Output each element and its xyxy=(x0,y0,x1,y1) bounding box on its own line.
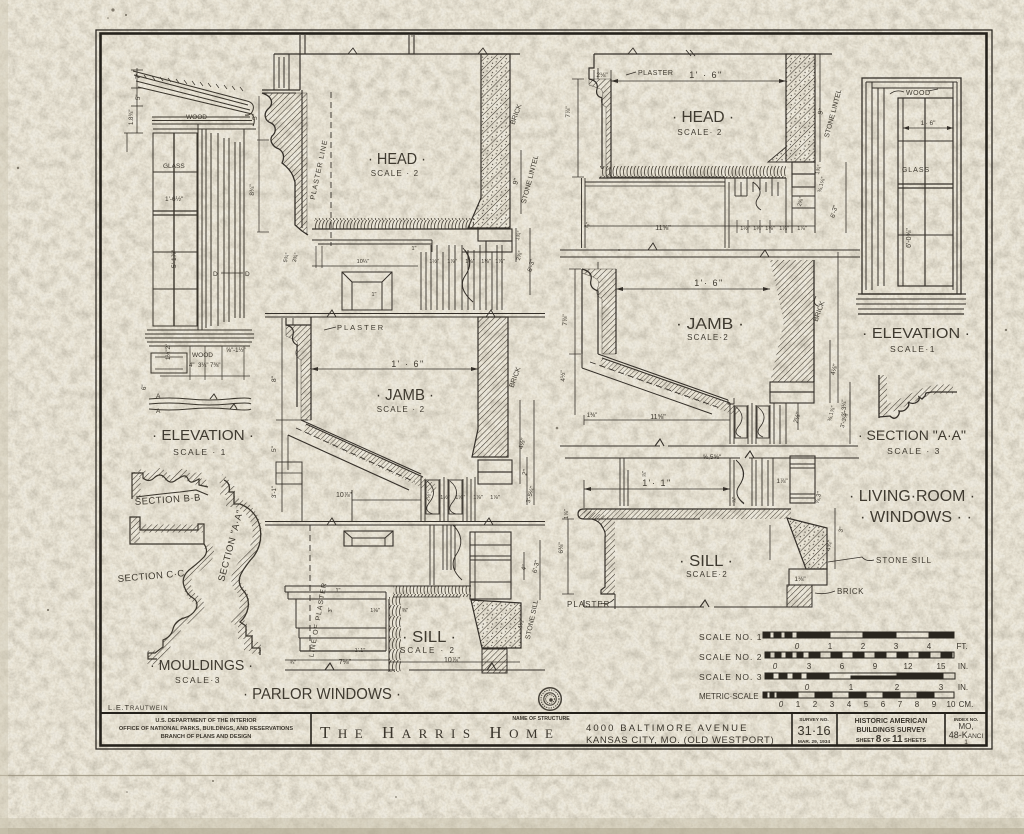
svg-text:SCALE·1: SCALE·1 xyxy=(890,344,936,354)
svg-text:2: 2 xyxy=(895,683,900,692)
svg-text:6": 6" xyxy=(142,385,148,390)
svg-text:1": 1" xyxy=(371,292,376,298)
svg-text:6⅜": 6⅜" xyxy=(558,542,565,554)
svg-text:CM.: CM. xyxy=(959,700,974,709)
svg-text:SCALE·3: SCALE·3 xyxy=(175,675,221,685)
svg-text:12: 12 xyxy=(904,662,913,671)
svg-text:3'-1": 3'-1" xyxy=(272,486,278,498)
svg-text:4": 4" xyxy=(189,363,194,369)
svg-text:1⅞": 1⅞" xyxy=(779,226,789,232)
svg-text:7⅜": 7⅜" xyxy=(210,363,220,369)
svg-text:⅜": ⅜" xyxy=(402,608,409,614)
svg-text:3'-3¼": 3'-3¼" xyxy=(842,400,848,417)
svg-text:1' · 6": 1' · 6" xyxy=(689,70,722,80)
svg-text:1: 1 xyxy=(796,700,801,709)
svg-text:10⅞": 10⅞" xyxy=(444,657,461,664)
svg-text:SCALE· 2: SCALE· 2 xyxy=(677,128,722,137)
svg-text:THE HARRIS HOME: THE HARRIS HOME xyxy=(320,723,560,742)
svg-text:7": 7" xyxy=(136,74,142,79)
svg-text:7⅞": 7⅞" xyxy=(562,314,569,326)
svg-text:1⅜": 1⅜" xyxy=(587,413,597,419)
svg-text:1⅞": 1⅞" xyxy=(447,259,457,265)
svg-text:1.8¾": 1.8¾" xyxy=(129,110,135,125)
svg-text:10¼": 10¼" xyxy=(357,259,370,265)
svg-text:SCALE · 3: SCALE · 3 xyxy=(887,446,941,456)
svg-text:· ELEVATION ·: · ELEVATION · xyxy=(152,428,254,444)
svg-text:NAME OF STRUCTURE: NAME OF STRUCTURE xyxy=(512,716,570,722)
svg-text:A: A xyxy=(156,393,161,400)
svg-text:SCALE·2: SCALE·2 xyxy=(687,333,729,342)
svg-text:1⅝": 1⅝" xyxy=(455,495,465,501)
svg-text:1'· 6": 1'· 6" xyxy=(921,120,936,127)
svg-text:1: 1 xyxy=(849,683,854,692)
svg-text:PLASTER: PLASTER xyxy=(567,600,610,609)
svg-text:¾": ¾" xyxy=(290,660,297,666)
svg-text:0: 0 xyxy=(795,642,800,651)
svg-text:1½"2": 1½"2" xyxy=(165,344,172,360)
svg-text:· HEAD ·: · HEAD · xyxy=(672,109,734,126)
svg-text:METRIC·SCALE: METRIC·SCALE xyxy=(699,692,759,701)
svg-text:SCALE NO. 1: SCALE NO. 1 xyxy=(699,632,762,642)
svg-text:3: 3 xyxy=(830,700,835,709)
svg-text:3": 3" xyxy=(328,607,334,612)
svg-text:5'-1⅞": 5'-1⅞" xyxy=(171,249,178,268)
svg-text:WOOD: WOOD xyxy=(906,90,931,97)
svg-text:SCALE NO. 3: SCALE NO. 3 xyxy=(699,672,762,682)
svg-text:⅞": ⅞" xyxy=(642,471,648,478)
svg-text:1'· 6": 1'· 6" xyxy=(694,278,723,288)
svg-text:· WINDOWS · ·: · WINDOWS · · xyxy=(860,509,972,526)
svg-text:1¼": 1¼" xyxy=(753,226,763,232)
svg-text:2: 2 xyxy=(813,700,818,709)
svg-text:11⅝": 11⅝" xyxy=(655,225,671,232)
svg-text:HISTORIC AMERICAN: HISTORIC AMERICAN xyxy=(855,718,928,725)
svg-text:⅞": ⅞" xyxy=(732,497,738,504)
svg-text:2⅛": 2⅛" xyxy=(596,72,608,79)
svg-text:1'-6½": 1'-6½" xyxy=(165,195,184,203)
svg-text:5": 5" xyxy=(271,445,278,452)
svg-text:1'· 1": 1'· 1" xyxy=(642,478,671,488)
svg-text:IN.: IN. xyxy=(958,662,968,671)
svg-text:· MOULDINGS ·: · MOULDINGS · xyxy=(150,657,253,674)
svg-text:· LIVING·ROOM ·: · LIVING·ROOM · xyxy=(849,488,975,505)
svg-text:3: 3 xyxy=(939,683,944,692)
svg-text:4000 BALTIMORE AVENUE: 4000 BALTIMORE AVENUE xyxy=(586,723,749,734)
svg-text:3¼": 3¼" xyxy=(198,363,208,369)
svg-text:IN.: IN. xyxy=(958,683,968,692)
svg-text:1½": 1½" xyxy=(740,225,750,232)
svg-text:D: D xyxy=(245,271,250,278)
svg-text:BUILDINGS SURVEY: BUILDINGS SURVEY xyxy=(856,727,925,734)
svg-text:1⅞": 1⅞" xyxy=(797,226,807,232)
svg-text:· SILL ·: · SILL · xyxy=(679,553,733,570)
svg-text:⅝"-1½": ⅝"-1½" xyxy=(226,347,246,354)
svg-text:1½": 1½" xyxy=(440,494,450,501)
svg-text:7⅞": 7⅞" xyxy=(565,106,572,118)
svg-text:D: D xyxy=(213,271,218,278)
svg-text:1'.1": 1'.1" xyxy=(355,648,366,654)
svg-text:0: 0 xyxy=(779,700,784,709)
svg-text:8": 8" xyxy=(271,375,278,382)
svg-text:1' · 6": 1' · 6" xyxy=(391,359,424,369)
svg-text:31·16: 31·16 xyxy=(797,723,830,738)
svg-text:OFFICE OF NATIONAL PARKS, BUIL: OFFICE OF NATIONAL PARKS, BUILDINGS, AND… xyxy=(119,726,293,732)
svg-text:6: 6 xyxy=(840,662,845,671)
svg-text:4: 4 xyxy=(927,642,932,651)
svg-text:PLASTER: PLASTER xyxy=(337,323,385,332)
svg-text:SCALE · 2: SCALE · 2 xyxy=(377,405,426,414)
svg-text:PLASTER: PLASTER xyxy=(638,70,673,77)
svg-text:1⅛": 1⅛" xyxy=(465,259,475,265)
svg-text:WOOD: WOOD xyxy=(186,114,207,121)
svg-text:· PARLOR WINDOWS ·: · PARLOR WINDOWS · xyxy=(243,686,401,703)
svg-text:A: A xyxy=(156,408,161,415)
svg-text:· SECTION "A·A": · SECTION "A·A" xyxy=(858,428,966,443)
svg-text:1½": 1½" xyxy=(429,258,439,265)
svg-text:3: 3 xyxy=(894,642,899,651)
svg-text:1: 1 xyxy=(828,642,833,651)
svg-text:8: 8 xyxy=(915,700,920,709)
svg-text:4½": 4½" xyxy=(559,370,567,382)
svg-text:SCALE · 2: SCALE · 2 xyxy=(371,169,420,178)
svg-text:· SILL ·: · SILL · xyxy=(402,629,456,646)
svg-text:10: 10 xyxy=(947,700,956,709)
svg-text:6: 6 xyxy=(881,700,886,709)
svg-text:U.S. DEPARTMENT OF THE INTERIO: U.S. DEPARTMENT OF THE INTERIOR xyxy=(155,718,256,724)
svg-text:15: 15 xyxy=(937,662,946,671)
svg-text:3: 3 xyxy=(807,662,812,671)
svg-text:5": 5" xyxy=(252,113,259,120)
svg-text:1⅞": 1⅞" xyxy=(564,509,570,519)
svg-text:SCALE · 1: SCALE · 1 xyxy=(173,447,227,457)
svg-text:9: 9 xyxy=(932,700,937,709)
svg-text:FT.: FT. xyxy=(956,642,967,651)
svg-text:· ELEVATION ·: · ELEVATION · xyxy=(862,326,970,342)
svg-text:BRICK: BRICK xyxy=(837,587,864,596)
svg-text:· JAMB ·: · JAMB · xyxy=(676,316,744,333)
svg-text:1⅞": 1⅞" xyxy=(776,478,788,485)
svg-text:· HEAD ·: · HEAD · xyxy=(368,151,426,168)
svg-text:1: 1 xyxy=(964,739,968,746)
svg-text:KANSAS CITY, MO. (OLD WESTPORT: KANSAS CITY, MO. (OLD WESTPORT) xyxy=(586,735,774,746)
svg-text:· JAMB ·: · JAMB · xyxy=(376,387,434,404)
svg-text:1⅛": 1⅛" xyxy=(765,226,775,232)
svg-text:1⅛": 1⅛" xyxy=(481,259,491,265)
svg-text:STONE SILL: STONE SILL xyxy=(876,556,932,565)
svg-text:5: 5 xyxy=(864,700,869,709)
svg-text:5": 5" xyxy=(136,95,142,100)
svg-text:1⅛": 1⅛" xyxy=(370,608,380,614)
svg-text:MAR. 29, 1934: MAR. 29, 1934 xyxy=(798,739,831,745)
svg-text:0: 0 xyxy=(773,662,778,671)
svg-text:6'-0⅝": 6'-0⅝" xyxy=(906,228,913,248)
svg-text:0: 0 xyxy=(805,683,810,692)
svg-text:8¾": 8¾" xyxy=(249,184,256,196)
svg-text:10⅞": 10⅞" xyxy=(336,492,353,499)
svg-text:4: 4 xyxy=(847,700,852,709)
svg-text:9: 9 xyxy=(873,662,878,671)
svg-text:BRANCH OF PLANS AND DESIGN: BRANCH OF PLANS AND DESIGN xyxy=(161,734,252,740)
svg-text:1⅛": 1⅛" xyxy=(794,576,806,583)
svg-text:1": 1" xyxy=(411,246,416,252)
svg-text:SCALE NO. 2: SCALE NO. 2 xyxy=(699,652,762,662)
svg-text:1⅞": 1⅞" xyxy=(473,495,483,501)
svg-text:1⅞": 1⅞" xyxy=(495,259,505,265)
svg-text:2: 2 xyxy=(861,642,866,651)
svg-text:WOOD: WOOD xyxy=(192,352,213,359)
svg-text:11⅝": 11⅝" xyxy=(650,414,666,421)
svg-text:7⅛": 7⅛" xyxy=(339,659,352,666)
svg-text:7: 7 xyxy=(898,700,903,709)
svg-text:GLASS: GLASS xyxy=(902,167,930,174)
svg-text:GLASS: GLASS xyxy=(163,163,185,170)
svg-text:1⅞": 1⅞" xyxy=(490,495,500,501)
svg-text:SCALE · 2: SCALE · 2 xyxy=(400,646,456,655)
svg-text:1": 1" xyxy=(335,588,340,594)
svg-text:SCALE·2: SCALE·2 xyxy=(686,570,728,579)
